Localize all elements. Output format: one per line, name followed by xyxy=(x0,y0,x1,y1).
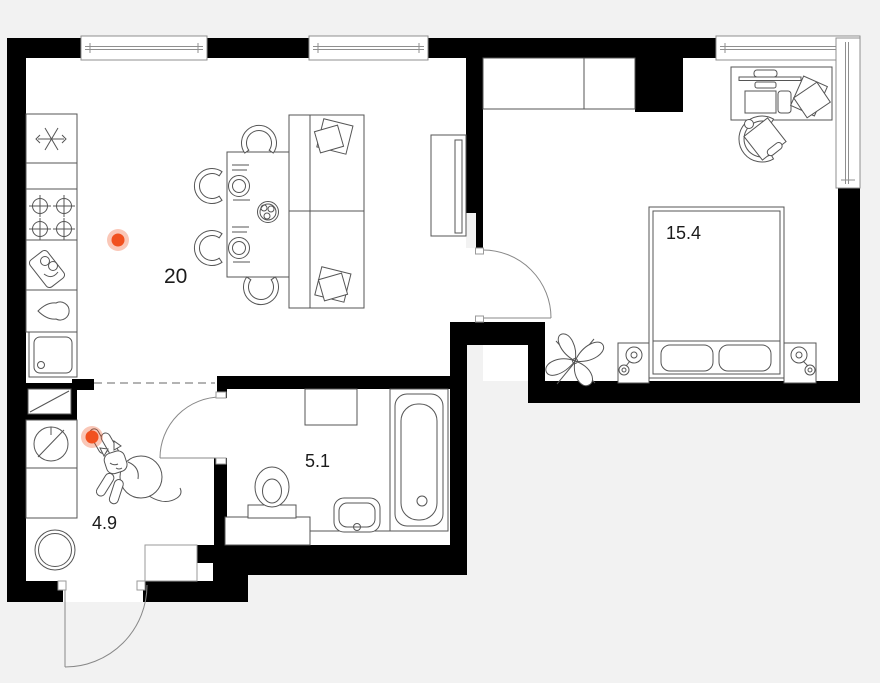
window-icon-living-1 xyxy=(81,36,207,60)
room-label-bathroom: 5.1 xyxy=(305,451,330,471)
kitchen-units xyxy=(26,114,77,377)
window-icon-living-2 xyxy=(309,36,428,60)
sofa-icon xyxy=(289,115,364,308)
vent-shaft-icon xyxy=(28,389,71,414)
wall-living-bedroom-thick xyxy=(466,58,483,213)
floor-plan-svg: 20 15.4 5.1 4.9 xyxy=(0,0,880,683)
marker-core xyxy=(112,234,125,247)
wall-hall-bottom-right xyxy=(143,581,213,602)
wardrobe-icon xyxy=(483,58,635,109)
wall-bath-top xyxy=(217,376,450,389)
marker-dot-living[interactable] xyxy=(107,229,129,251)
tv-console-icon xyxy=(431,135,466,236)
dining-table-icon xyxy=(227,152,290,277)
wall-hall-right-chunk xyxy=(213,563,248,602)
wall-hall-bottom-left xyxy=(7,581,63,602)
washbasin-icon xyxy=(334,498,380,532)
wall-bath-right xyxy=(450,345,467,575)
room-label-living: 20 xyxy=(164,265,187,288)
wall-right xyxy=(838,188,860,403)
stove-icon xyxy=(26,189,77,240)
doorway-entry xyxy=(63,581,143,602)
cutting-board-icon xyxy=(26,240,77,290)
bed-pillow xyxy=(661,345,713,371)
bathtub-icon xyxy=(390,389,448,531)
doorway-bedroom xyxy=(466,248,483,322)
wall-left xyxy=(7,38,26,602)
nightstand-lamp-icon xyxy=(618,343,649,383)
entry-closet xyxy=(145,545,197,581)
kitchen-sink-icon xyxy=(29,332,77,377)
marker-core xyxy=(86,431,99,444)
fridge-icon xyxy=(26,114,77,163)
room-label-hallway: 4.9 xyxy=(92,513,117,533)
floor-plan-canvas: 20 15.4 5.1 4.9 xyxy=(0,0,880,683)
washing-machine-icon xyxy=(26,420,77,468)
wall-bedroom-bottom xyxy=(528,381,860,403)
hall-cabinet xyxy=(26,468,77,518)
wall-bath-bottom xyxy=(213,545,467,575)
wall-living-bedroom-thin xyxy=(476,213,483,248)
boiler-cabinet-icon xyxy=(305,389,357,425)
wall-column-bedroom xyxy=(635,38,683,112)
kettle-icon xyxy=(26,290,77,332)
marker-dot-hallway[interactable] xyxy=(81,426,103,448)
doorway-bathroom xyxy=(213,398,227,458)
desk-icon xyxy=(731,67,832,120)
wall-top-1 xyxy=(26,38,81,58)
kitchen-counter xyxy=(26,163,77,189)
bed-pillow xyxy=(719,345,771,371)
water-heater-icon xyxy=(35,530,75,570)
nightstand-lamp-icon xyxy=(784,343,816,383)
room-label-bedroom: 15.4 xyxy=(666,223,701,243)
wall-below-bedroom-door xyxy=(450,322,545,345)
wall-top-2 xyxy=(207,38,309,58)
wall-hall-step xyxy=(197,545,213,563)
